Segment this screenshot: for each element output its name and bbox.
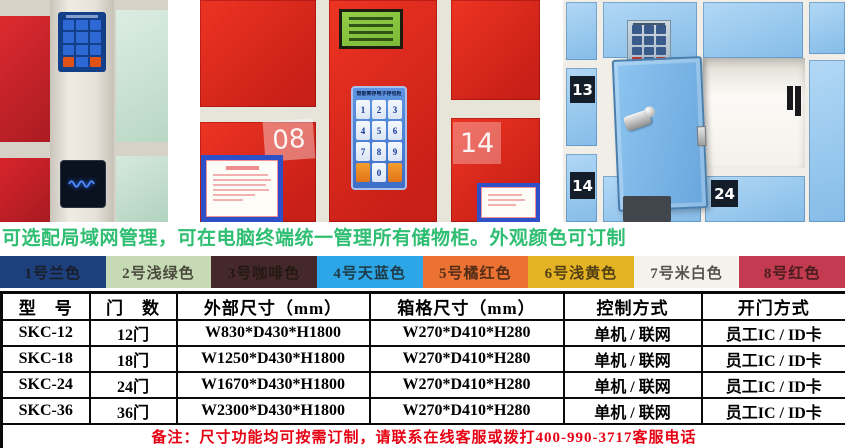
table-cell: SKC-18 <box>2 346 90 372</box>
table-cell: W270*D410*H280 <box>370 398 564 424</box>
door-lock-knob <box>644 106 655 117</box>
lcd-screen <box>339 9 403 49</box>
keypad-key <box>90 20 101 30</box>
table-cell: 12门 <box>90 320 177 346</box>
color-option-label: 3号咖啡色 <box>228 262 301 283</box>
locker-door <box>0 158 50 222</box>
color-option-1: 1号兰色 <box>0 256 106 288</box>
notice-paper <box>477 183 540 222</box>
door-latch <box>697 126 707 146</box>
door-number-label: 14 <box>453 122 501 164</box>
keypad-key <box>632 25 642 34</box>
keypad-key <box>356 163 370 182</box>
column-header: 外部尺寸（mm） <box>177 293 370 321</box>
door-number-label: 14 <box>570 172 595 199</box>
table-row: SKC-36 36门 W2300*D430*H1800 W270*D410*H2… <box>2 398 845 424</box>
keypad-key: 4 <box>356 121 370 140</box>
locker-door <box>566 2 597 60</box>
color-option-label: 1号兰色 <box>25 262 82 283</box>
keypad-key: 6 <box>388 121 402 140</box>
table-cell: 员工IC / ID卡 <box>702 346 845 372</box>
table-cell: SKC-12 <box>2 320 90 346</box>
table-cell: 24门 <box>90 372 177 398</box>
table-cell: W1250*D430*H1800 <box>177 346 370 372</box>
column-header: 门 数 <box>90 293 177 321</box>
table-cell: 单机 / 联网 <box>564 320 702 346</box>
wave-light-icon <box>67 177 99 191</box>
color-option-label: 7号米白色 <box>650 262 723 283</box>
table-cell: W270*D410*H280 <box>370 346 564 372</box>
keypad-key: 9 <box>388 142 402 161</box>
locker-door <box>809 2 845 54</box>
table-row: SKC-12 12门 W830*D430*H1800 W270*D410*H28… <box>2 320 845 346</box>
card-reader <box>623 196 671 222</box>
keypad-key <box>644 36 654 45</box>
color-option-7: 7号米白色 <box>634 256 740 288</box>
table-cell: W270*D410*H280 <box>370 320 564 346</box>
table-cell: W830*D430*H1800 <box>177 320 370 346</box>
color-option-label: 4号天蓝色 <box>333 262 406 283</box>
table-cell: W270*D410*H280 <box>370 372 564 398</box>
table-row: SKC-18 18门 W1250*D430*H1800 W270*D410*H2… <box>2 346 845 372</box>
keypad-key <box>76 45 87 55</box>
keypad-key: 1 <box>356 100 370 119</box>
lock-mechanism <box>787 86 793 110</box>
photo-locker-closeup-right: 13 14 24 <box>563 0 845 222</box>
open-locker-door <box>612 56 709 212</box>
door-number-label: 24 <box>711 180 738 207</box>
headline-text: 可选配局域网管理，可在电脑终端统一管理所有储物柜。外观颜色可订制 <box>2 224 845 254</box>
keypad: 智能寄存电子存包柜 1 2 3 4 5 6 7 8 9 0 <box>351 86 407 190</box>
keypad-key: 3 <box>388 100 402 119</box>
table-row: SKC-24 24门 W1670*D430*H1800 W270*D410*H2… <box>2 372 845 398</box>
locker-door <box>451 0 540 100</box>
color-option-5: 5号橘红色 <box>423 256 529 288</box>
table-cell: 单机 / 联网 <box>564 372 702 398</box>
column-header: 箱格尺寸（mm） <box>370 293 564 321</box>
keypad-key: 5 <box>372 121 386 140</box>
open-compartment-interior <box>703 58 805 168</box>
locker-door <box>703 2 803 58</box>
table-note: 备注：尺寸功能均可按需订制，请联系在线客服或拨打400-990-3717客服电话 <box>2 424 845 448</box>
column-header: 型 号 <box>2 293 90 321</box>
color-option-8: 8号红色 <box>739 256 845 288</box>
color-option-6: 6号浅黄色 <box>528 256 634 288</box>
table-header-row: 型 号 门 数 外部尺寸（mm） 箱格尺寸（mm） 控制方式 开门方式 <box>2 293 845 321</box>
keypad <box>58 12 106 72</box>
table-note-row: 备注：尺寸功能均可按需订制，请联系在线客服或拨打400-990-3717客服电话 <box>2 424 845 448</box>
keypad-key <box>656 47 666 56</box>
color-option-3: 3号咖啡色 <box>211 256 317 288</box>
table-cell: SKC-36 <box>2 398 90 424</box>
table-cell: 员工IC / ID卡 <box>702 372 845 398</box>
lcd-text-lines <box>349 17 393 41</box>
keypad-key <box>644 25 654 34</box>
keypad-key: 7 <box>356 142 370 161</box>
table-cell: 单机 / 联网 <box>564 346 702 372</box>
table-cell: W1670*D430*H1800 <box>177 372 370 398</box>
color-option-label: 6号浅黄色 <box>545 262 618 283</box>
color-option-4: 4号天蓝色 <box>317 256 423 288</box>
door-number-label: 13 <box>570 76 595 103</box>
keypad-key <box>90 32 101 42</box>
keypad-key <box>90 57 101 67</box>
table-cell: 员工IC / ID卡 <box>702 398 845 424</box>
keypad-key <box>76 20 87 30</box>
color-option-label: 2号浅绿色 <box>122 262 195 283</box>
keypad-key <box>63 32 74 42</box>
keypad-key <box>76 32 87 42</box>
keypad-key <box>388 163 402 182</box>
color-option-label: 8号红色 <box>764 262 821 283</box>
keypad-key <box>632 47 642 56</box>
locker-door <box>200 0 316 107</box>
keypad-key: 0 <box>372 163 386 182</box>
column-header: 开门方式 <box>702 293 845 321</box>
photo-locker-closeup-middle: 智能寄存电子存包柜 1 2 3 4 5 6 7 8 9 0 08 14 <box>200 0 540 222</box>
keypad-key <box>656 36 666 45</box>
table-cell: 18门 <box>90 346 177 372</box>
card-reader <box>60 160 106 208</box>
keypad-key: 2 <box>372 100 386 119</box>
lock-mechanism <box>795 86 801 116</box>
keypad-key <box>644 47 654 56</box>
locker-door <box>809 60 845 222</box>
table-cell: 36门 <box>90 398 177 424</box>
product-page: 智能寄存电子存包柜 1 2 3 4 5 6 7 8 9 0 08 14 <box>0 0 845 448</box>
color-option-2: 2号浅绿色 <box>106 256 212 288</box>
locker-door <box>116 156 168 222</box>
spec-table: 型 号 门 数 外部尺寸（mm） 箱格尺寸（mm） 控制方式 开门方式 SKC-… <box>0 291 845 448</box>
color-option-label: 5号橘红色 <box>439 262 512 283</box>
keypad-key <box>63 57 74 67</box>
keypad-title: 智能寄存电子存包柜 <box>356 91 402 98</box>
keypad-key <box>63 20 74 30</box>
locker-door <box>0 16 50 142</box>
keypad-key: 8 <box>372 142 386 161</box>
locker-door <box>116 10 168 142</box>
table-cell: W2300*D430*H1800 <box>177 398 370 424</box>
table-cell: 单机 / 联网 <box>564 398 702 424</box>
keypad-key <box>63 45 74 55</box>
table-cell: SKC-24 <box>2 372 90 398</box>
keypad-key <box>632 36 642 45</box>
color-options-bar: 1号兰色 2号浅绿色 3号咖啡色 4号天蓝色 5号橘红色 6号浅黄色 7号米白色… <box>0 256 845 288</box>
table-cell: 员工IC / ID卡 <box>702 320 845 346</box>
keypad-key <box>90 45 101 55</box>
keypad-key <box>656 25 666 34</box>
photo-locker-closeup-left <box>0 0 168 222</box>
column-header: 控制方式 <box>564 293 702 321</box>
keypad-key <box>76 57 87 67</box>
notice-paper <box>201 155 283 222</box>
